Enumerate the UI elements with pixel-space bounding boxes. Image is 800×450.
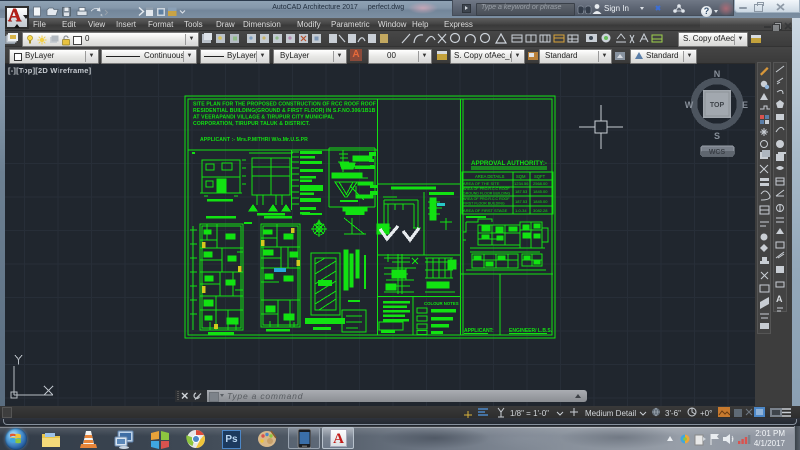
svg-text:2568.00: 2568.00	[533, 181, 548, 186]
svg-text:AREA OF PRO.R.C.C ROOF: AREA OF PRO.R.C.C ROOF	[463, 187, 510, 191]
svg-text:3082.28: 3082.28	[533, 208, 548, 213]
svg-text:RESIDENTIAL BUILDING(GROUND &: RESIDENTIAL BUILDING(GROUND & FIRST FLOO…	[193, 108, 376, 114]
svg-text:CORPORATION, TIRUPUR TALUK & D: CORPORATION, TIRUPUR TALUK & DISTRICT.	[193, 121, 310, 127]
svg-text:1/8" = 1'-0": 1/8" = 1'-0"	[510, 409, 549, 418]
svg-text:1234.56: 1234.56	[514, 181, 529, 186]
svg-text:APPLICANT:: APPLICANT:	[464, 328, 494, 334]
svg-text:COLOUR NOTES: COLOUR NOTES	[424, 301, 459, 306]
svg-text:SQFT: SQFT	[534, 174, 546, 179]
svg-text:AREA OF FIRST STAGE: AREA OF FIRST STAGE	[463, 208, 508, 213]
svg-text:Medium Detail: Medium Detail	[585, 409, 636, 418]
svg-text:E: E	[742, 100, 748, 110]
svg-text:187.53: 187.53	[515, 199, 528, 204]
svg-text:+0°: +0°	[700, 409, 712, 418]
svg-text:3'-6": 3'-6"	[665, 409, 681, 418]
svg-text:APPLICANT :- Mrs.P.MITHRI W/o.: APPLICANT :- Mrs.P.MITHRI W/o.Mr.U.S.PR	[200, 137, 308, 143]
svg-text:AREA OF THE SITE: AREA OF THE SITE	[463, 181, 500, 186]
svg-text:1845.00: 1845.00	[533, 199, 548, 204]
svg-text:N: N	[714, 69, 721, 79]
svg-text:AT VEERAPANDI VILLAGE & TIRUPU: AT VEERAPANDI VILLAGE & TIRUPUR CITY MUN…	[193, 115, 334, 121]
svg-text:GROUND FLOOR BUILDING: GROUND FLOOR BUILDING	[463, 192, 511, 196]
svg-text:187.53: 187.53	[515, 189, 528, 194]
svg-text:AREA OF PRO.R.C.C ROOF: AREA OF PRO.R.C.C ROOF	[463, 197, 510, 201]
svg-text:1845.00: 1845.00	[533, 189, 548, 194]
svg-text:WCS: WCS	[709, 149, 726, 156]
svg-text:TOP: TOP	[710, 102, 725, 109]
svg-text:W: W	[685, 100, 694, 110]
svg-text:AREA DETAILS: AREA DETAILS	[475, 174, 505, 179]
svg-text:SITE PLAN FOR THE PROPOSED CON: SITE PLAN FOR THE PROPOSED CONSTRUCTION …	[193, 102, 376, 108]
svg-text:APPROVAL AUTHORITY:-: APPROVAL AUTHORITY:-	[471, 160, 547, 167]
svg-text:A: A	[776, 294, 783, 304]
svg-text:1-0-34: 1-0-34	[515, 208, 527, 213]
svg-text:FIRST FLOOR BUILDING: FIRST FLOOR BUILDING	[463, 202, 505, 206]
svg-text:ENGINEER/ L.B.S.: ENGINEER/ L.B.S.	[509, 328, 553, 334]
svg-text:S: S	[714, 131, 720, 141]
svg-text:SQM: SQM	[516, 174, 526, 179]
